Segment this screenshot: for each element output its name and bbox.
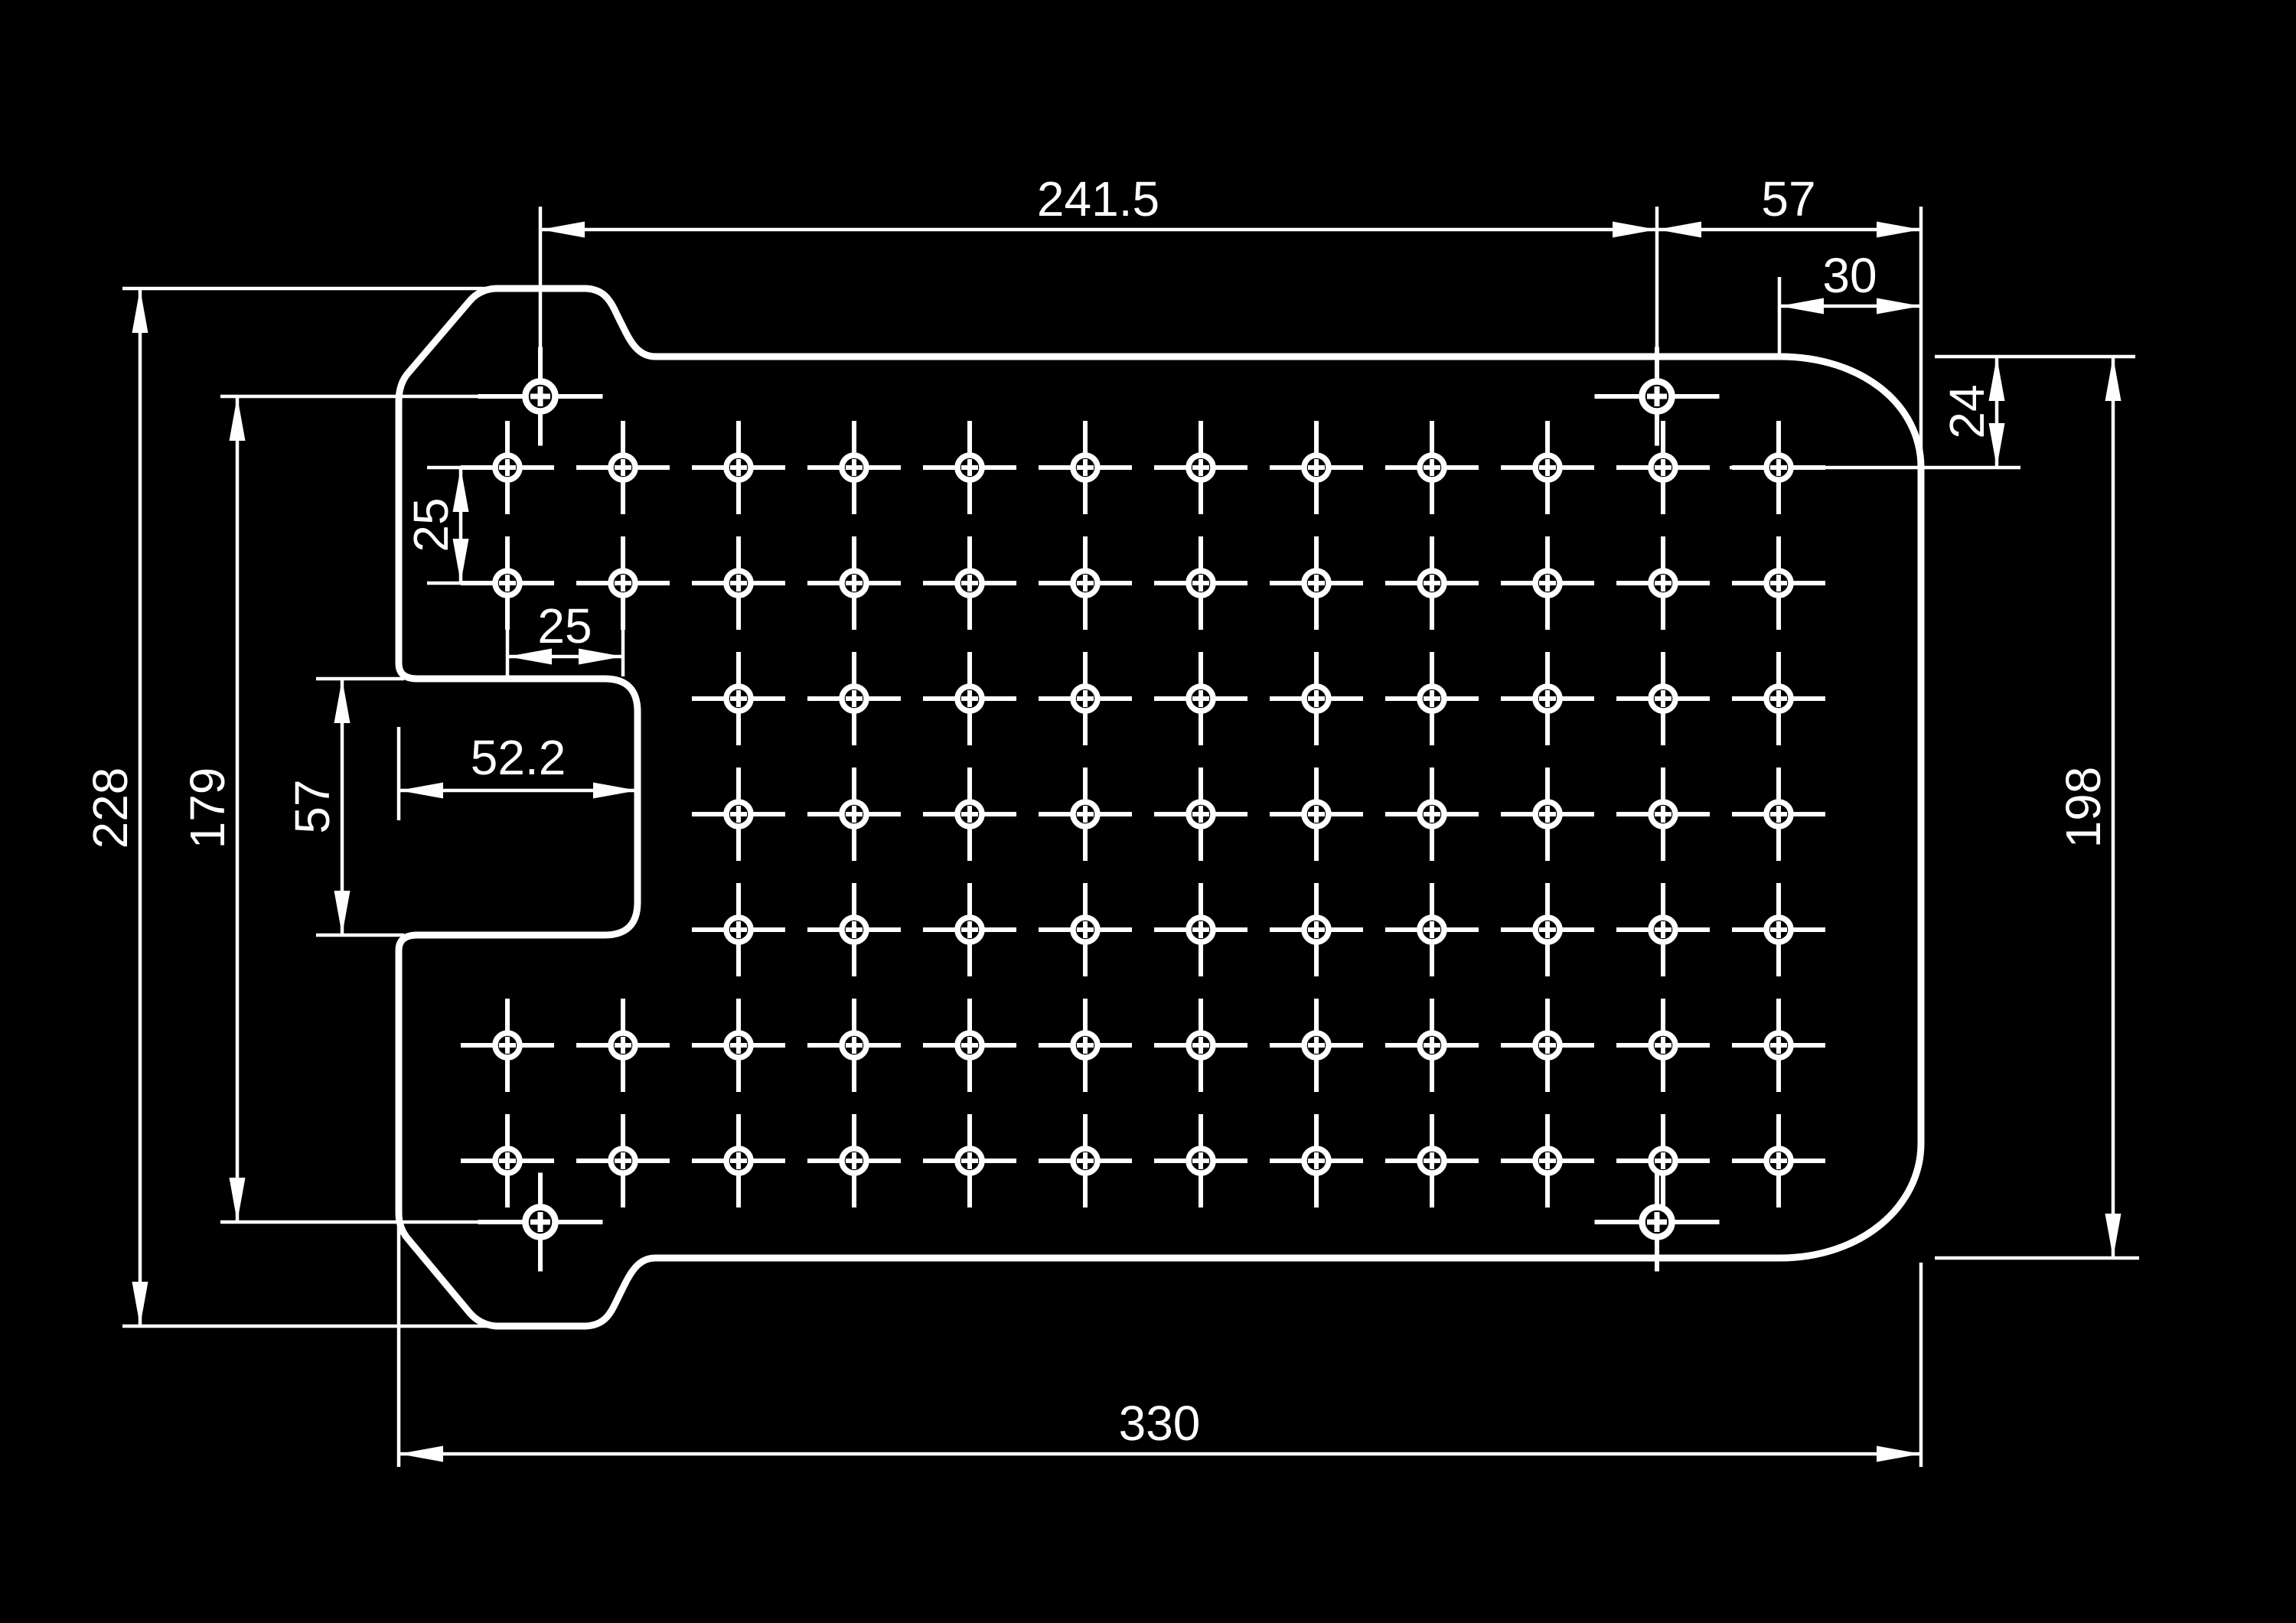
dimension-arrowhead (132, 1282, 148, 1326)
dimension-arrowhead (230, 1178, 246, 1222)
small-hole-marker (1385, 883, 1479, 976)
dimension-arrowhead (1779, 298, 1824, 314)
dimension-arrowhead (230, 396, 246, 441)
small-hole-marker (923, 536, 1016, 630)
small-hole-marker (1616, 536, 1710, 630)
small-hole-marker (1039, 999, 1132, 1092)
small-hole-marker (1154, 768, 1247, 861)
small-hole-marker (692, 536, 785, 630)
small-hole-marker (1732, 883, 1825, 976)
dim-30-label: 30 (1822, 248, 1877, 303)
small-hole-marker (1270, 1114, 1363, 1207)
small-hole-marker (1270, 652, 1363, 745)
small-hole-marker (692, 652, 785, 745)
small-hole-marker (692, 421, 785, 514)
small-hole-marker (1270, 883, 1363, 976)
dimension-arrowhead (2105, 357, 2122, 401)
small-hole-marker (1270, 536, 1363, 630)
small-hole-marker (923, 768, 1016, 861)
dimension-arrowhead (334, 679, 351, 723)
large-hole-marker (478, 1173, 603, 1272)
small-hole-marker (1154, 999, 1247, 1092)
small-hole-marker (1501, 536, 1594, 630)
dimension-arrowhead (1877, 298, 1921, 314)
small-hole-marker (1616, 768, 1710, 861)
dimension-arrowhead (1657, 222, 1701, 238)
dimension-arrowhead (2105, 1214, 2122, 1258)
dim-179-label: 179 (180, 768, 235, 849)
small-hole-marker (1154, 652, 1247, 745)
dim-52-2-label: 52.2 (471, 730, 566, 785)
small-hole-marker (1385, 768, 1479, 861)
dimension-arrowhead (1877, 1446, 1921, 1462)
small-hole-marker (1501, 1114, 1594, 1207)
small-hole-marker (807, 999, 901, 1092)
small-hole-marker (461, 999, 554, 1092)
cad-drawing-frame: 241.5573024198330228179252552.257 (0, 0, 2296, 1623)
small-hole-marker (1039, 1114, 1132, 1207)
small-hole-marker (576, 1114, 670, 1207)
dimension-arrows-group (132, 222, 2122, 1462)
small-hole-marker (692, 1114, 785, 1207)
small-hole-marker (923, 421, 1016, 514)
small-hole-marker (923, 999, 1016, 1092)
small-hole-marker (692, 883, 785, 976)
large-hole-marker (478, 347, 603, 446)
small-hole-marker (1039, 883, 1132, 976)
small-hole-marker (1616, 652, 1710, 745)
small-hole-marker (807, 652, 901, 745)
small-hole-marker (1501, 421, 1594, 514)
small-hole-marker (1154, 536, 1247, 630)
dimension-arrowhead (540, 222, 585, 238)
small-hole-marker (1616, 421, 1710, 514)
small-hole-marker (1732, 768, 1825, 861)
dim-25-h-label: 25 (537, 598, 592, 653)
small-hole-marker (923, 883, 1016, 976)
dim-57-left-label: 57 (285, 779, 340, 833)
dimension-arrowhead (334, 891, 351, 935)
hole-pattern-group (461, 347, 1825, 1272)
small-hole-marker (692, 999, 785, 1092)
small-hole-marker (1039, 421, 1132, 514)
small-hole-marker (1616, 1114, 1710, 1207)
small-hole-marker (923, 652, 1016, 745)
small-hole-marker (807, 1114, 901, 1207)
dim-25-v-label: 25 (403, 497, 458, 552)
dimension-arrowhead (399, 1446, 443, 1462)
small-hole-marker (807, 421, 901, 514)
technical-drawing-canvas: 241.5573024198330228179252552.257 (0, 0, 2296, 1623)
small-hole-marker (1732, 652, 1825, 745)
large-hole-marker (1595, 347, 1720, 446)
dimension-arrowhead (593, 783, 638, 799)
small-hole-marker (1154, 1114, 1247, 1207)
small-hole-marker (807, 536, 901, 630)
small-hole-marker (1616, 883, 1710, 976)
dimension-arrowhead (132, 288, 148, 333)
small-hole-marker (1154, 883, 1247, 976)
small-hole-marker (807, 768, 901, 861)
small-hole-marker (1732, 1114, 1825, 1207)
dim-330-label: 330 (1119, 1396, 1201, 1451)
dim-24-label: 24 (1939, 384, 1994, 438)
small-hole-marker (1039, 652, 1132, 745)
small-hole-marker (1501, 999, 1594, 1092)
small-hole-marker (1270, 421, 1363, 514)
small-hole-marker (923, 1114, 1016, 1207)
small-hole-marker (1732, 421, 1825, 514)
small-hole-marker (1385, 421, 1479, 514)
dim-198-label: 198 (2056, 767, 2111, 849)
small-hole-marker (807, 883, 901, 976)
dimension-arrowhead (1877, 222, 1921, 238)
small-hole-marker (1385, 652, 1479, 745)
small-hole-marker (692, 768, 785, 861)
dim-228-label: 228 (83, 768, 138, 849)
small-hole-marker (1270, 999, 1363, 1092)
small-hole-marker (576, 421, 670, 514)
small-hole-marker (1501, 652, 1594, 745)
small-hole-marker (1385, 999, 1479, 1092)
small-hole-marker (1270, 768, 1363, 861)
small-hole-marker (1385, 536, 1479, 630)
small-hole-marker (576, 999, 670, 1092)
small-hole-marker (1732, 536, 1825, 630)
small-hole-marker (1385, 1114, 1479, 1207)
small-hole-marker (1039, 536, 1132, 630)
dim-241-5-label: 241.5 (1037, 171, 1159, 227)
dimension-arrowhead (399, 783, 443, 799)
small-hole-marker (1501, 768, 1594, 861)
small-hole-marker (1616, 999, 1710, 1092)
small-hole-marker (1154, 421, 1247, 514)
dim-57-top-label: 57 (1761, 171, 1815, 227)
extension-lines-group (122, 207, 2139, 1467)
small-hole-marker (1039, 768, 1132, 861)
small-hole-marker (1732, 999, 1825, 1092)
small-hole-marker (1501, 883, 1594, 976)
dimension-arrowhead (1613, 222, 1657, 238)
